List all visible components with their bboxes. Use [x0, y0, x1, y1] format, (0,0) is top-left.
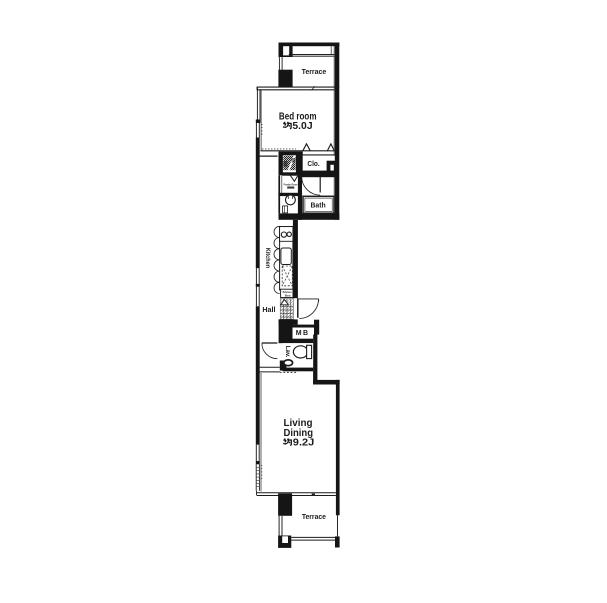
svg-text:Hall: Hall	[262, 307, 275, 314]
svg-text:9.2J: 9.2J	[293, 437, 315, 448]
svg-text:Terrace: Terrace	[302, 69, 327, 76]
svg-text:5.0J: 5.0J	[292, 121, 312, 132]
svg-text:Kitchen: Kitchen	[264, 248, 271, 269]
svg-text:Bath: Bath	[311, 203, 326, 210]
svg-text:Powder Room: Powder Room	[284, 182, 298, 186]
svg-text:Lav.: Lav.	[284, 346, 291, 358]
svg-text:Box: Box	[285, 294, 291, 298]
svg-text:Clo.: Clo.	[307, 161, 319, 168]
svg-text:Terrace: Terrace	[302, 514, 326, 521]
